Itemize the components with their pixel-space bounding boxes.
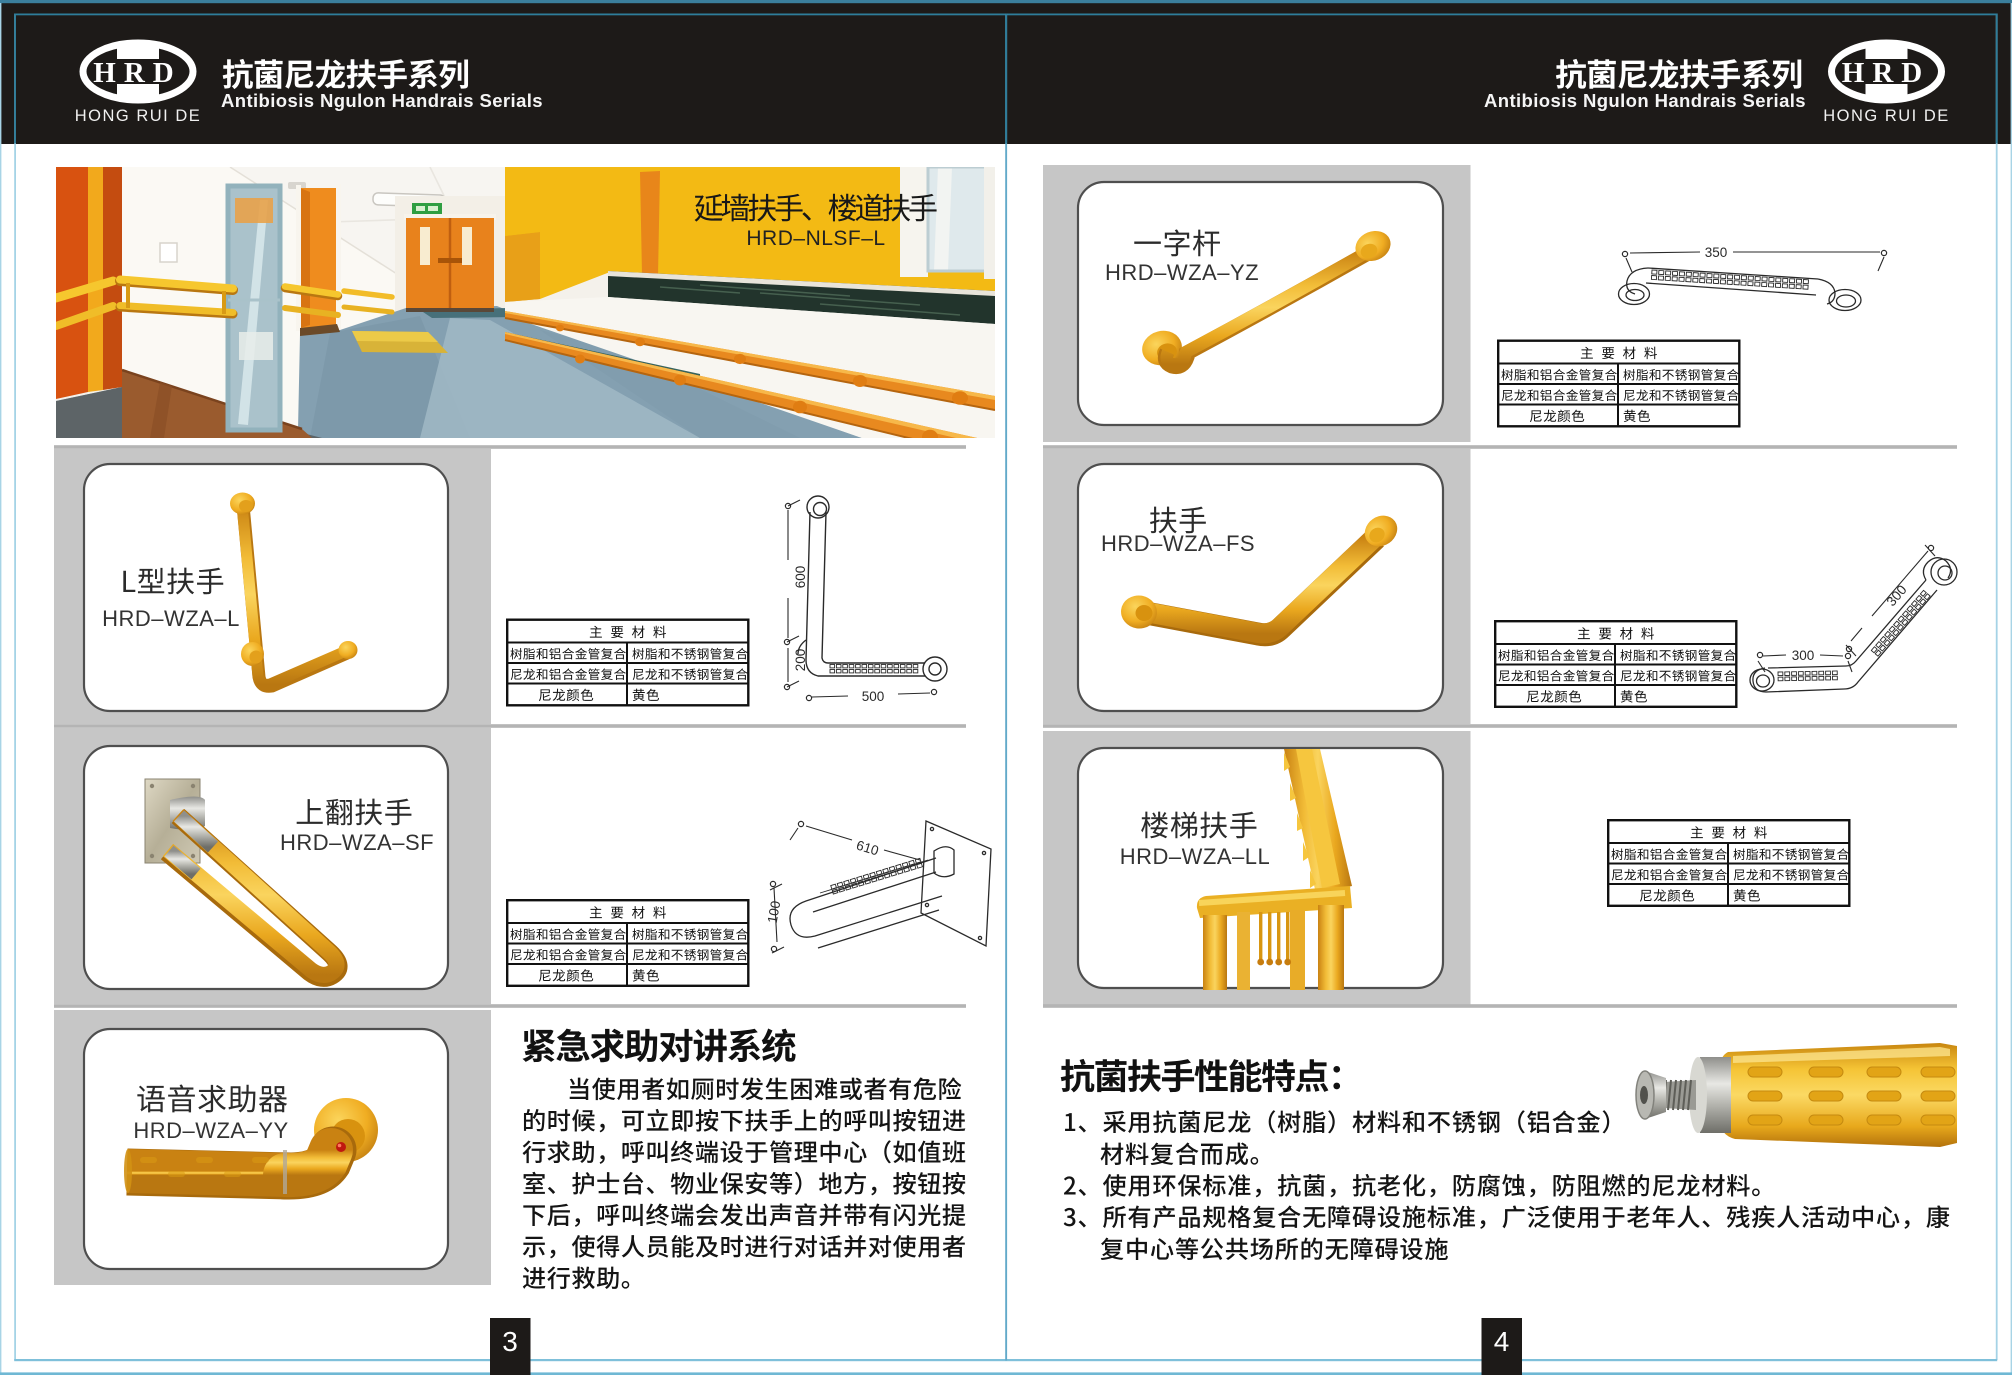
svg-text:HONG RUI DE: HONG RUI DE xyxy=(1823,107,1950,125)
svg-text:350: 350 xyxy=(1705,245,1728,260)
svg-text:HRD–WZA–SF: HRD–WZA–SF xyxy=(280,830,434,855)
svg-text:HRD–WZA–FS: HRD–WZA–FS xyxy=(1101,531,1255,556)
svg-text:3: 3 xyxy=(502,1326,518,1357)
svg-text:HRD: HRD xyxy=(93,57,181,89)
svg-text:300: 300 xyxy=(1792,648,1815,663)
svg-text:500: 500 xyxy=(862,689,885,704)
svg-text:HRD–WZA–L: HRD–WZA–L xyxy=(102,606,240,631)
svg-text:HONG RUI DE: HONG RUI DE xyxy=(75,107,202,125)
svg-text:HRD–WZA–YY: HRD–WZA–YY xyxy=(133,1118,288,1143)
svg-text:HRD: HRD xyxy=(1842,57,1930,89)
svg-text:HRD–WZA–YZ: HRD–WZA–YZ xyxy=(1105,260,1259,285)
svg-text:4: 4 xyxy=(1494,1326,1510,1357)
svg-text:Antibiosis Ngulon Handrais Ser: Antibiosis Ngulon Handrais Serials xyxy=(1484,90,1806,111)
svg-text:HRD–NLSF–L: HRD–NLSF–L xyxy=(746,227,885,250)
svg-text:200: 200 xyxy=(793,649,808,672)
svg-text:HRD–WZA–LL: HRD–WZA–LL xyxy=(1120,844,1270,869)
svg-text:600: 600 xyxy=(793,566,808,589)
svg-text:Antibiosis Ngulon Handrais Ser: Antibiosis Ngulon Handrais Serials xyxy=(221,90,543,111)
